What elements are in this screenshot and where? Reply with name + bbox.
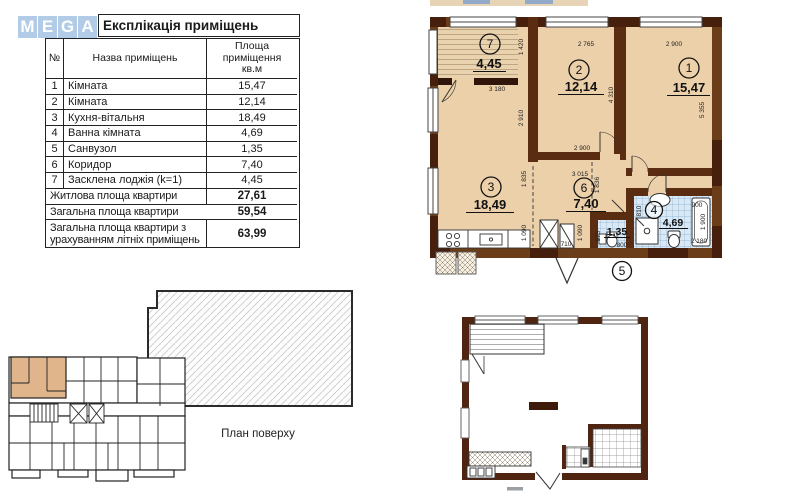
total-overall-value: 59,54 — [207, 205, 297, 221]
svg-text:1,35: 1,35 — [607, 226, 628, 238]
row-area: 12,14 — [207, 95, 297, 111]
svg-text:4,45: 4,45 — [476, 56, 501, 71]
row-area: 4,69 — [207, 126, 297, 142]
outline-entry-door — [535, 472, 562, 489]
row-num: 4 — [46, 126, 64, 142]
row-name: Кімната — [64, 95, 207, 111]
svg-text:5 355: 5 355 — [699, 101, 706, 118]
apartment-plan: 7 4,45 2 12,14 1 15,47 3 18,49 6 7,40 4 … — [420, 0, 740, 292]
row-area: 15,47 — [207, 79, 297, 95]
svg-text:2 900: 2 900 — [574, 145, 591, 152]
row-name: Кухня-вітальня — [64, 110, 207, 126]
mega-logo-letter: E — [38, 16, 57, 38]
svg-text:1 900: 1 900 — [700, 213, 707, 230]
total-overall-label: Загальна площа квартири — [46, 205, 207, 221]
building-floor-plan: План поверху — [0, 280, 440, 498]
row-name: Санвузол — [64, 142, 207, 158]
svg-text:710: 710 — [561, 241, 572, 248]
svg-text:4: 4 — [651, 203, 658, 217]
svg-text:2: 2 — [576, 63, 583, 77]
svg-text:900: 900 — [692, 202, 703, 209]
stair-core — [30, 404, 58, 422]
svg-text:2 910: 2 910 — [518, 109, 525, 126]
outline-kitchen-boxes — [467, 466, 495, 478]
highlighted-apartment — [11, 357, 66, 398]
col-header-num: № — [46, 39, 64, 79]
col-header-name: Назва приміщень — [64, 39, 207, 79]
mega-logo: M E G A — [18, 16, 97, 38]
outline-balcony-hatch — [469, 452, 531, 466]
svg-text:1 090: 1 090 — [577, 224, 584, 241]
svg-text:18,49: 18,49 — [474, 197, 507, 212]
svg-text:1 420: 1 420 — [518, 38, 525, 55]
cut-plan-strip — [430, 0, 588, 6]
svg-text:3 180: 3 180 — [489, 86, 506, 93]
kitchen-counter — [438, 230, 530, 248]
svg-text:15,47: 15,47 — [673, 80, 706, 95]
row-num: 1 — [46, 79, 64, 95]
row-num: 2 — [46, 95, 64, 111]
row-name: Ванна кімната — [64, 126, 207, 142]
svg-text:7,40: 7,40 — [573, 196, 598, 211]
svg-text:1: 1 — [686, 61, 693, 75]
svg-text:1 090: 1 090 — [521, 224, 528, 241]
row-area: 18,49 — [207, 110, 297, 126]
mega-logo-letter: M — [18, 16, 37, 38]
row-area: 1,35 — [207, 142, 297, 158]
floor-plan-caption: План поверху — [221, 428, 295, 440]
col-header-area: Площа приміщення кв.м — [207, 39, 297, 79]
lower-balcony — [436, 252, 476, 274]
total-living-value: 27,61 — [207, 189, 297, 205]
elevator-core — [70, 404, 104, 423]
svg-text:6: 6 — [581, 181, 588, 195]
svg-text:2 900: 2 900 — [666, 41, 683, 48]
svg-text:810: 810 — [636, 205, 643, 216]
svg-text:975: 975 — [595, 230, 602, 241]
svg-text:3 015: 3 015 — [572, 171, 589, 178]
svg-text:7: 7 — [487, 37, 494, 51]
svg-text:4 310: 4 310 — [608, 86, 615, 103]
listing-image: { "logo": {"letters": ["M", "E", "G", "A… — [0, 0, 800, 498]
svg-text:800: 800 — [617, 242, 628, 249]
svg-text:1 835: 1 835 — [521, 170, 528, 187]
mega-logo-letter: G — [58, 16, 77, 38]
svg-text:1 836: 1 836 — [594, 176, 601, 193]
row-num: 6 — [46, 157, 64, 173]
mega-logo-letter: A — [78, 16, 97, 38]
row-name: Кімната — [64, 79, 207, 95]
total-with-summer-label: Загальна площа квартири з урахуванням лі… — [46, 220, 207, 247]
cutoff-mark — [507, 487, 523, 491]
total-living-label: Житлова площа квартири — [46, 189, 207, 205]
row-name: Засклена лоджія (k=1) — [64, 173, 207, 189]
explication-title: Експлікація приміщень — [98, 14, 300, 37]
row-num: 7 — [46, 173, 64, 189]
total-with-summer-value: 63,99 — [207, 220, 297, 247]
row-name: Коридор — [64, 157, 207, 173]
svg-text:12,14: 12,14 — [565, 79, 598, 94]
explication-table: № Назва приміщень Площа приміщення кв.м … — [45, 38, 300, 248]
row-num: 5 — [46, 142, 64, 158]
svg-text:2 765: 2 765 — [578, 41, 595, 48]
outline-dark-dash — [529, 402, 558, 410]
row-num: 3 — [46, 110, 64, 126]
svg-text:4,69: 4,69 — [663, 217, 684, 229]
apartment-outline-plan — [440, 293, 675, 498]
svg-text:3: 3 — [488, 180, 495, 194]
row-area: 7,40 — [207, 157, 297, 173]
row-area: 4,45 — [207, 173, 297, 189]
svg-text:5: 5 — [619, 264, 626, 278]
svg-text:2 180: 2 180 — [691, 238, 708, 245]
